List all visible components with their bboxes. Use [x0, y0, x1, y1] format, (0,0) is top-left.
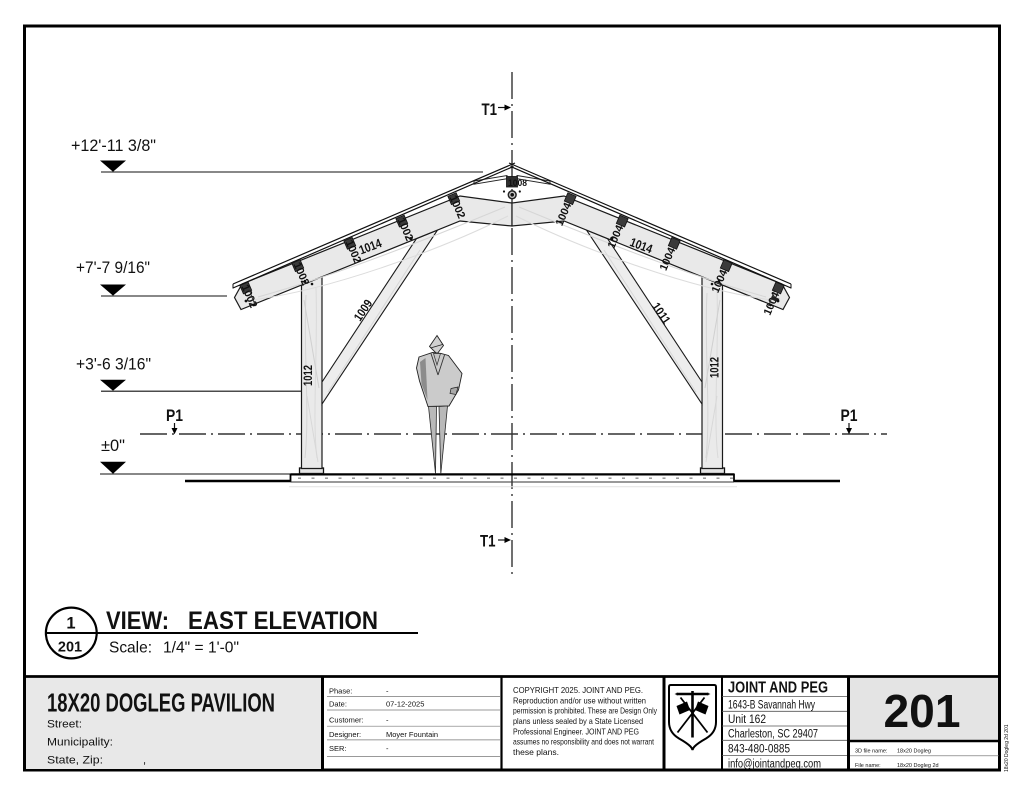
svg-text:Phase:: Phase:	[329, 686, 352, 695]
svg-text:1012: 1012	[303, 365, 315, 386]
svg-text:assumes no responsibility and: assumes no responsibility and does not w…	[513, 738, 655, 747]
svg-text:these plans.: these plans.	[513, 748, 559, 757]
svg-text:3D file name:: 3D file name:	[855, 749, 888, 755]
svg-text:,: ,	[143, 755, 146, 767]
svg-text:Designer:: Designer:	[329, 730, 361, 739]
svg-text:18x20 Dogleg 2d: 18x20 Dogleg 2d	[897, 763, 939, 769]
svg-text:T1: T1	[482, 100, 498, 119]
svg-text:VIEW:: VIEW:	[106, 607, 169, 635]
svg-text:201: 201	[58, 640, 82, 656]
svg-text:1/4" = 1'-0": 1/4" = 1'-0"	[163, 639, 239, 656]
svg-text:info@jointandpeg.com: info@jointandpeg.com	[728, 759, 821, 771]
svg-text:Street:: Street:	[47, 719, 82, 731]
svg-text:Moyer Fountain: Moyer Fountain	[386, 730, 438, 739]
svg-text:Date:: Date:	[329, 700, 347, 709]
svg-text:±0": ±0"	[101, 437, 125, 455]
svg-text:T1: T1	[480, 532, 496, 551]
svg-text:P1: P1	[841, 406, 858, 425]
svg-text:Customer:: Customer:	[329, 716, 364, 725]
svg-text:18X20 DOGLEG PAVILION: 18X20 DOGLEG PAVILION	[47, 688, 275, 718]
svg-text:1008: 1008	[508, 178, 527, 189]
svg-text:+3'-6 3/16": +3'-6 3/16"	[76, 356, 151, 374]
svg-text:File name:: File name:	[855, 763, 881, 769]
svg-text:Unit 162: Unit 162	[728, 714, 766, 726]
svg-text:1: 1	[66, 615, 75, 633]
svg-text:Scale:: Scale:	[109, 639, 152, 656]
svg-text:P1: P1	[166, 406, 183, 425]
svg-text:Municipality:: Municipality:	[47, 737, 113, 749]
svg-text:State, Zip:: State, Zip:	[47, 755, 103, 767]
svg-text:JOINT AND PEG: JOINT AND PEG	[728, 680, 828, 697]
svg-text:Professional Engineer. JOINT: Professional Engineer. JOINT AND PEG	[513, 727, 639, 736]
svg-text:+7'-7 9/16": +7'-7 9/16"	[76, 259, 150, 277]
svg-text:Reproduction and/or use withou: Reproduction and/or use without written	[513, 696, 646, 705]
svg-text:1643-B Savannah Hwy: 1643-B Savannah Hwy	[728, 700, 815, 712]
svg-text:201: 201	[884, 685, 961, 737]
svg-text:18x20 Dogleg: 18x20 Dogleg	[897, 749, 931, 755]
svg-text:07-12-2025: 07-12-2025	[386, 700, 424, 709]
svg-text:permission is prohibited. The: permission is prohibited. These are Desi…	[513, 707, 658, 716]
svg-text:843-480-0885: 843-480-0885	[728, 744, 790, 756]
svg-text:1012: 1012	[710, 357, 722, 378]
svg-text:plans unless sealed by a State: plans unless sealed by a State Licensed	[513, 717, 643, 726]
svg-text:Charleston, SC 29407: Charleston, SC 29407	[728, 729, 818, 741]
svg-text:+12'-11 3/8": +12'-11 3/8"	[71, 137, 156, 155]
svg-text:EAST ELEVATION: EAST ELEVATION	[188, 607, 378, 635]
svg-text:SER:: SER:	[329, 744, 347, 753]
svg-text:18x20 Dogleg 2d 201: 18x20 Dogleg 2d 201	[1004, 724, 1010, 772]
svg-text:COPYRIGHT 2025. JOINT AND PEG: COPYRIGHT 2025. JOINT AND PEG.	[513, 686, 643, 695]
